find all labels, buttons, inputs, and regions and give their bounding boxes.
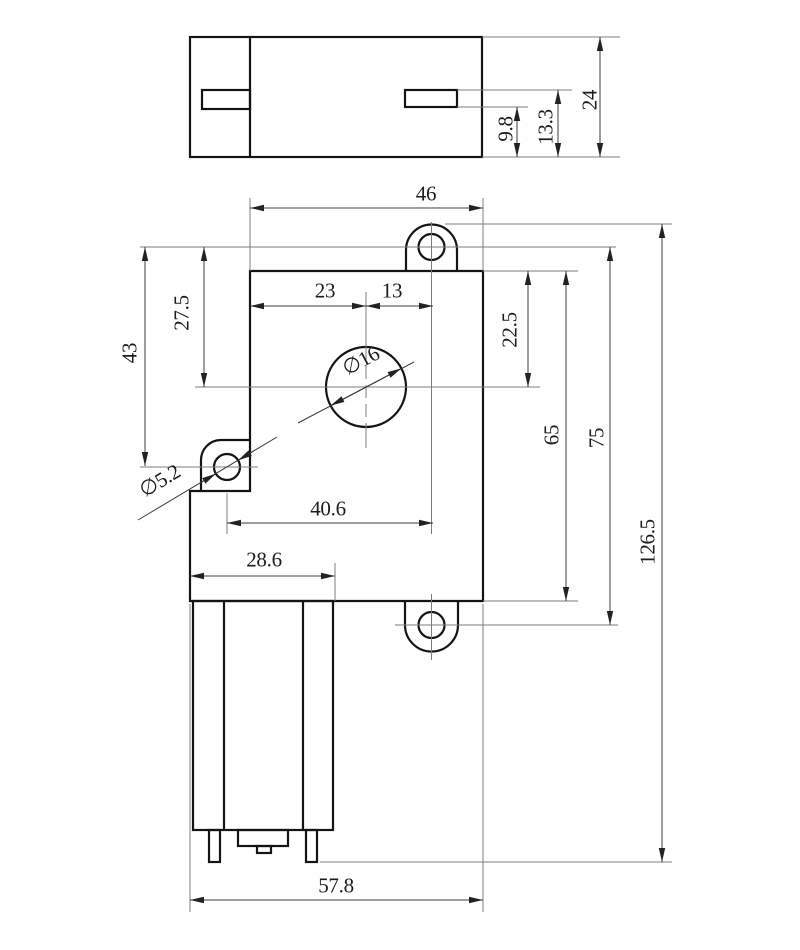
dim-label-23: 23 — [315, 281, 335, 302]
top-view-body — [190, 37, 482, 157]
motor-end-cap-nub — [257, 846, 271, 853]
dim-label-13: 13 — [382, 281, 402, 302]
top-view-outline — [190, 37, 482, 157]
front-view-outline — [190, 225, 483, 652]
extension-lines — [140, 37, 672, 912]
left-mount-tab — [201, 440, 250, 491]
gearbox-body — [190, 271, 483, 601]
dim-label-22-5: 22.5 — [500, 312, 521, 348]
engineering-drawing: 46 23 13 27.5 43 22.5 65 75 126.5 40.6 2… — [0, 0, 800, 950]
dim-label-27-5: 27.5 — [172, 295, 193, 331]
dim-label-43: 43 — [120, 343, 141, 363]
dim-label-9-8: 9.8 — [496, 116, 517, 141]
dim-label-65: 65 — [542, 425, 563, 445]
dim-label-24: 24 — [580, 90, 601, 110]
dim-label-13-3: 13.3 — [536, 109, 557, 145]
dim-label-126-5: 126.5 — [638, 519, 659, 565]
dim-label-28-6: 28.6 — [246, 550, 282, 571]
motor-can — [193, 601, 333, 830]
dim-label-40-6: 40.6 — [310, 499, 346, 520]
motor-end-cap — [238, 830, 288, 846]
dim-label-46: 46 — [416, 184, 436, 205]
top-view-right-slot — [405, 90, 457, 107]
motor-outline — [193, 601, 333, 862]
dimension-lines — [145, 37, 662, 900]
dim-label-57-8: 57.8 — [318, 876, 354, 897]
dim-label-75: 75 — [587, 428, 608, 448]
top-view-left-slot — [202, 90, 250, 109]
terminal-pin-right — [306, 830, 317, 862]
leader-lines — [138, 362, 414, 520]
terminal-pin-left — [209, 830, 220, 862]
drawing-canvas — [0, 0, 800, 950]
